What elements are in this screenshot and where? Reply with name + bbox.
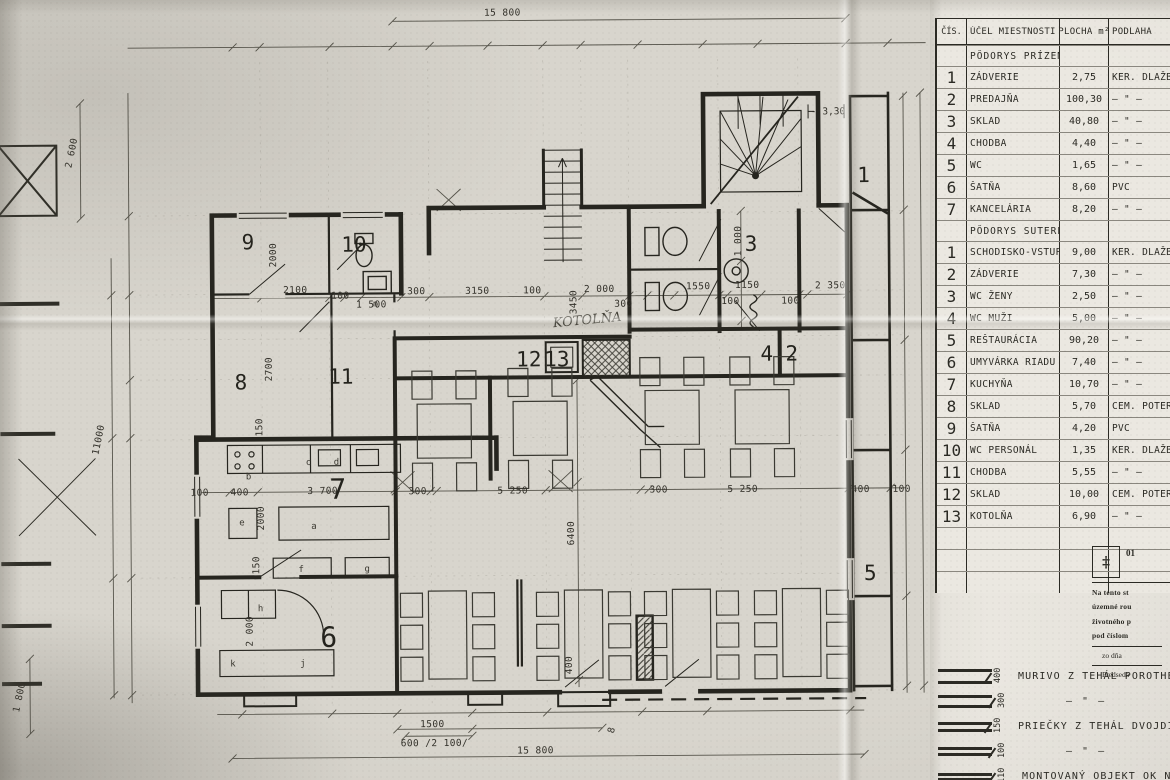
approval-stamp: ‡ 01 Na tento st územné rou životného p … bbox=[1092, 546, 1170, 681]
window-gap-top-1 bbox=[237, 211, 289, 220]
dim-label: 2 000 bbox=[584, 284, 615, 295]
stamp-text-line: územné rou bbox=[1092, 600, 1170, 614]
room-number: 12 bbox=[516, 347, 541, 371]
cell-floor: CEM. POTER bbox=[1109, 488, 1170, 501]
wall-thickness-label: 300 bbox=[997, 696, 1007, 708]
cell-area: 100,30 bbox=[1059, 89, 1109, 110]
dim-ticks-top bbox=[228, 14, 891, 52]
square-tables bbox=[417, 390, 789, 459]
equipment-letter: n bbox=[373, 299, 378, 309]
staff-sink bbox=[363, 271, 391, 293]
cell-name: UMYVÁRKA RIADU bbox=[967, 356, 1059, 369]
window-gap-right-2 bbox=[845, 558, 854, 600]
toilet-bowl-icon bbox=[663, 227, 687, 255]
equipment-letter: e bbox=[239, 518, 244, 528]
table-row: 6UMYVÁRKA RIADU7,40— " — bbox=[937, 351, 1170, 373]
cell-num: 5 bbox=[937, 330, 967, 351]
dim-label-vertical: 1 000 bbox=[733, 226, 744, 257]
room6-table bbox=[220, 650, 334, 677]
cell-num: 11 bbox=[937, 462, 967, 483]
cell-floor: — " — bbox=[1109, 466, 1170, 479]
stamp-emblem-icon: ‡ bbox=[1092, 546, 1120, 578]
cell-area: 8,20 bbox=[1059, 199, 1109, 220]
vestibule-hatched-floor bbox=[583, 340, 630, 377]
cell-area: 4,40 bbox=[1059, 133, 1109, 154]
dim-label: 400 bbox=[230, 487, 248, 498]
equipment-letter: f bbox=[299, 565, 304, 575]
wall-top-segments bbox=[429, 205, 847, 253]
cell-name: CHODBA bbox=[967, 466, 1059, 479]
dim-label-vertical: 1 800 bbox=[11, 681, 28, 713]
cell-floor bbox=[1109, 230, 1170, 232]
wall-hatch-icon bbox=[938, 747, 996, 756]
kitchen-counter bbox=[227, 444, 400, 473]
handwritten-note: KOTOLŇA bbox=[551, 308, 622, 331]
window-lines bbox=[193, 209, 853, 647]
burner-icon-1 bbox=[235, 452, 240, 457]
wall-hatch-icon bbox=[938, 722, 992, 732]
dim-label-vertical: 2 600 bbox=[63, 137, 80, 169]
cell-name: WC MUŽI bbox=[967, 312, 1059, 325]
serving-ramp bbox=[590, 376, 664, 448]
cell-floor: — " — bbox=[1109, 356, 1170, 369]
equipment-letter: b bbox=[246, 472, 251, 482]
dim-label-vertical: 150 bbox=[251, 556, 262, 574]
room-number: 10 bbox=[341, 233, 366, 257]
dim-label: 15 800 bbox=[484, 7, 521, 18]
cell-area: 5,00 bbox=[1059, 308, 1109, 329]
dim-label-vertical: 2700 bbox=[264, 357, 275, 382]
cell-floor: KER. DLAŽBA bbox=[1109, 246, 1170, 259]
cell-num: 10 bbox=[937, 440, 967, 461]
kitchen-island bbox=[279, 506, 389, 540]
wall-legend-row: 100 — " — bbox=[938, 739, 1170, 764]
cell-name: ZÁDVERIE bbox=[967, 71, 1059, 84]
stair-center-arrow bbox=[558, 158, 567, 262]
cell-floor bbox=[1109, 538, 1170, 540]
dim-label: 100 bbox=[331, 291, 349, 302]
room-schedule-table: ČÍS. ÚČEL MIESTNOSTI PLOCHA m² PODLAHA P… bbox=[935, 18, 1170, 593]
dim-label: 5 250 bbox=[727, 484, 758, 495]
blueprint-photo: 15 800 1500 600 /2 100/ 15 800 2100 100 … bbox=[0, 0, 1170, 780]
dim-label: 3150 bbox=[465, 286, 490, 297]
wall-hatch-icon bbox=[938, 669, 992, 684]
cell-num: 13 bbox=[937, 506, 967, 527]
dim-label: 1550 bbox=[686, 281, 711, 292]
wall-legend-label: PRIEČKY Z TEHÁL DVOJDIER. bbox=[1004, 721, 1170, 732]
cell-area: 10,00 bbox=[1059, 484, 1109, 505]
stair-center bbox=[543, 150, 582, 262]
stair-diagonal bbox=[710, 97, 799, 205]
equipment-letter: a bbox=[311, 522, 316, 532]
cell-floor: — " — bbox=[1109, 93, 1170, 106]
window-glazing-lines bbox=[193, 209, 853, 647]
dim-label: 2100 bbox=[283, 285, 308, 296]
cell-floor: — " — bbox=[1109, 312, 1170, 325]
stamp-text-line: pod číslom bbox=[1092, 629, 1170, 643]
table-row: 9ŠATŇA4,20PVC bbox=[937, 417, 1170, 439]
dim-line-right bbox=[903, 93, 924, 693]
cell-num: 1 bbox=[937, 242, 967, 263]
dim-label-vertical: 11000 bbox=[90, 424, 107, 456]
wall-kitchen-top bbox=[196, 438, 496, 471]
dim-label: 400 bbox=[851, 484, 869, 495]
restaurant-tables-bottom bbox=[400, 588, 849, 681]
wall-thickness-label: 150 bbox=[993, 721, 1003, 733]
dim-line-left bbox=[26, 93, 132, 734]
table-row: 1ZÁDVERIE2,75KER. DLAŽBA bbox=[937, 66, 1170, 88]
wall-legend-label: — " — bbox=[1008, 696, 1106, 707]
cell-floor bbox=[1109, 55, 1170, 57]
burner-icon-3 bbox=[235, 464, 240, 469]
header-floor: PODLAHA bbox=[1109, 26, 1170, 38]
cell-area: 7,30 bbox=[1059, 264, 1109, 285]
room-number: 8 bbox=[606, 726, 618, 735]
wall-legend-label: MONTOVANÝ OBJEKT OK N bbox=[1008, 771, 1170, 780]
window-gap-right-1 bbox=[844, 418, 853, 460]
wall-legend-row: 400 MURIVO Z TEHÁL POROTHERM bbox=[938, 664, 1170, 689]
cell-area: 5,55 bbox=[1059, 462, 1109, 483]
wall-legend-label: MURIVO Z TEHÁL POROTHERM bbox=[1004, 671, 1170, 682]
cell-floor: KER. DLAŽBA bbox=[1109, 444, 1170, 457]
door-gap-1 bbox=[249, 290, 285, 298]
table-row: 4WC MUŽI5,00— " — bbox=[937, 307, 1170, 329]
cell-name: SKLAD bbox=[967, 488, 1059, 501]
cell-name: WC bbox=[967, 159, 1059, 172]
header-num: ČÍS. bbox=[937, 19, 967, 44]
cell-name: CHODBA bbox=[967, 137, 1059, 150]
cell-num: 1 bbox=[937, 67, 967, 88]
cell-area: 40,80 bbox=[1059, 111, 1109, 132]
wall-hatch-icon bbox=[938, 695, 996, 708]
header-area: PLOCHA m² bbox=[1059, 19, 1109, 44]
table-row: 5REŠTAURÁCIA90,20— " — bbox=[937, 329, 1170, 351]
cell-area: 90,20 bbox=[1059, 330, 1109, 351]
wall-legend-row: 150 PRIEČKY Z TEHÁL DVOJDIER. bbox=[938, 714, 1170, 739]
table-row: 1SCHODISKO-VSTUP9,00KER. DLAŽBA bbox=[937, 241, 1170, 263]
equipment-letter: h bbox=[258, 604, 263, 614]
dim-label: 100 bbox=[892, 484, 910, 495]
room-number: 7 bbox=[329, 473, 346, 506]
wall-legend-row: 110 MONTOVANÝ OBJEKT OK N bbox=[938, 764, 1170, 780]
cell-floor: KER. DLAŽBA bbox=[1109, 71, 1170, 84]
cell-area: 1,65 bbox=[1059, 155, 1109, 176]
cell-name: PREDAJŇA bbox=[967, 93, 1059, 106]
cell-name: KANCELÁRIA bbox=[967, 203, 1059, 216]
cell-num: 8 bbox=[937, 396, 967, 417]
cell-num bbox=[937, 528, 967, 549]
toilet-bowl-icon-2 bbox=[663, 282, 687, 310]
cell-floor: — " — bbox=[1109, 203, 1170, 216]
dim-label: 1500 bbox=[420, 719, 445, 730]
room-number: 9 bbox=[242, 230, 255, 254]
room-number: 2 bbox=[785, 342, 798, 366]
wall-legend-label: — " — bbox=[1008, 746, 1106, 757]
cell-num: 5 bbox=[937, 155, 967, 176]
table-row: 13KOTOLŇA6,90— " — bbox=[937, 505, 1170, 527]
toilet-tank-2 bbox=[645, 282, 659, 310]
dim-label-vertical: 2000 bbox=[256, 506, 267, 531]
cell-num bbox=[937, 46, 967, 66]
cell-name: ŠATŇA bbox=[967, 422, 1059, 435]
cell-area: 2,75 bbox=[1059, 67, 1109, 88]
cell-area: 2,50 bbox=[1059, 286, 1109, 307]
washbasin-drain bbox=[732, 267, 740, 275]
dim-label: 100 bbox=[781, 296, 799, 307]
cell-area: 4,20 bbox=[1059, 418, 1109, 439]
equipment-letter: d bbox=[334, 458, 339, 468]
window-gap-top-2 bbox=[341, 210, 385, 219]
dim-label: 100 bbox=[721, 296, 739, 307]
stamp-emblem-row: ‡ 01 bbox=[1092, 546, 1170, 578]
cell-floor: — " — bbox=[1109, 268, 1170, 281]
dim-label-vertical: 150 bbox=[254, 418, 265, 436]
equipment-letter: j bbox=[300, 659, 305, 669]
cell-num: 3 bbox=[937, 111, 967, 132]
table-row: 2ZÁDVERIE7,30— " — bbox=[937, 263, 1170, 285]
cell-name: KUCHYŇA bbox=[967, 378, 1059, 391]
stamp-rule bbox=[1092, 582, 1170, 583]
dim-label: 300 bbox=[649, 484, 667, 495]
dim-label-vertical: 400 bbox=[564, 656, 575, 674]
axis-cross-marks bbox=[389, 188, 573, 493]
cell-area bbox=[1059, 221, 1109, 241]
window-gap-left-2 bbox=[193, 605, 202, 649]
cell-num: 7 bbox=[937, 374, 967, 395]
cell-floor: — " — bbox=[1109, 115, 1170, 128]
canopy-dashed-line bbox=[602, 698, 866, 700]
cell-name: REŠTAURÁCIA bbox=[967, 334, 1059, 347]
long-tables bbox=[428, 588, 821, 679]
table-row: 2PREDAJŇA100,30— " — bbox=[937, 88, 1170, 110]
dim-label: 1150 bbox=[735, 280, 760, 291]
walls bbox=[194, 93, 892, 695]
room6-door-arc bbox=[277, 590, 323, 636]
wall-thickness-label: 110 bbox=[997, 771, 1007, 780]
room-number: 5 bbox=[864, 561, 877, 585]
table-row: 8SKLAD5,70CEM. POTER bbox=[937, 395, 1170, 417]
dim-label-vertical: 6400 bbox=[566, 521, 577, 546]
staff-sink-basin bbox=[368, 276, 386, 289]
dim-line-top bbox=[127, 18, 925, 49]
counter-sink-2 bbox=[356, 449, 378, 465]
section-title-row: PÔDORYS SUTERÉNU bbox=[937, 220, 1170, 241]
cell-floor: — " — bbox=[1109, 137, 1170, 150]
table-row: 6ŠATŇA8,60PVC bbox=[937, 176, 1170, 198]
equipment-letter: k bbox=[230, 659, 236, 669]
cell-name: SKLAD bbox=[967, 400, 1059, 413]
room-number: 13 bbox=[544, 347, 569, 371]
table-header-row: ČÍS. ÚČEL MIESTNOSTI PLOCHA m² PODLAHA bbox=[937, 19, 1170, 45]
cell-name: WC ŽENY bbox=[967, 290, 1059, 303]
dim-label-vertical: 2 000 bbox=[245, 616, 256, 647]
wall-type-legend: 400 MURIVO Z TEHÁL POROTHERM 300 — " — 1… bbox=[938, 664, 1170, 780]
cell-area: 8,60 bbox=[1059, 177, 1109, 198]
toilet-tank-1 bbox=[645, 227, 659, 255]
dim-label: 1 500 bbox=[356, 299, 387, 310]
stamp-rule bbox=[1092, 646, 1162, 647]
cell-name: SCHODISKO-VSTUP bbox=[967, 246, 1059, 259]
cell-floor: PVC bbox=[1109, 181, 1170, 194]
cell-num: 6 bbox=[937, 177, 967, 198]
table-row: 12SKLAD10,00CEM. POTER bbox=[937, 483, 1170, 505]
wall-thickness-label: 400 bbox=[993, 671, 1003, 683]
section-title: PÔDORYS SUTERÉNU bbox=[967, 225, 1059, 238]
stamp-text-line: Na tento st bbox=[1092, 586, 1170, 600]
wc-fixtures bbox=[355, 227, 757, 330]
dim-label-vertical: 3450 bbox=[568, 290, 579, 315]
level-label: - 3,30 bbox=[811, 106, 846, 117]
cell-floor: — " — bbox=[1109, 334, 1170, 347]
cell-area: 6,90 bbox=[1059, 506, 1109, 527]
burner-icon-4 bbox=[249, 464, 254, 469]
room-number: 6 bbox=[320, 621, 337, 654]
cell-num: 6 bbox=[937, 352, 967, 373]
cell-name: ŠATŇA bbox=[967, 181, 1059, 194]
cell-area bbox=[1059, 46, 1109, 66]
chairs-bottom bbox=[400, 590, 849, 681]
cell-area: 5,70 bbox=[1059, 396, 1109, 417]
cell-name bbox=[967, 582, 1059, 584]
room-number: 8 bbox=[235, 370, 248, 394]
dim-label: 300 bbox=[408, 486, 426, 497]
equipment-letter: c bbox=[306, 458, 311, 468]
burner-icon-2 bbox=[249, 452, 254, 457]
cell-num: 7 bbox=[937, 199, 967, 220]
table-row: 7KANCELÁRIA8,20— " — bbox=[937, 198, 1170, 220]
stair-newel bbox=[752, 173, 758, 179]
equipment-letter-labels: b c d e a f g h k j n bbox=[228, 299, 381, 669]
cell-num: 12 bbox=[937, 484, 967, 505]
dim-label: 100 bbox=[190, 488, 208, 499]
cell-num: 4 bbox=[937, 308, 967, 329]
table-row: 5WC1,65— " — bbox=[937, 154, 1170, 176]
dim-label-vertical: 2000 bbox=[268, 243, 279, 268]
wall-hatch-icon bbox=[938, 773, 996, 780]
cell-floor: PVC bbox=[1109, 422, 1170, 435]
equipment-letter: g bbox=[365, 565, 370, 575]
dim-label: 15 800 bbox=[517, 745, 554, 756]
cell-num bbox=[937, 550, 967, 571]
cell-name bbox=[967, 538, 1059, 540]
cell-area: 7,40 bbox=[1059, 352, 1109, 373]
dim-label: 2 350 bbox=[815, 280, 846, 291]
header-name: ÚČEL MIESTNOSTI bbox=[967, 26, 1059, 38]
cell-name: WC PERSONÁL bbox=[967, 444, 1059, 457]
cell-num: 2 bbox=[937, 89, 967, 110]
door-gap-4 bbox=[662, 686, 698, 696]
room-number: 1 bbox=[857, 163, 870, 187]
dim-label: 600 /2 100/ bbox=[401, 738, 468, 749]
cell-num bbox=[937, 221, 967, 241]
dim-label: 100 bbox=[523, 285, 541, 296]
room-number: 3 bbox=[745, 232, 758, 256]
stair-upper-block bbox=[710, 93, 802, 204]
table-row: 7KUCHYŇA10,70— " — bbox=[937, 373, 1170, 395]
cell-num: 9 bbox=[937, 418, 967, 439]
table-row: 3WC ŽENY2,50— " — bbox=[937, 285, 1170, 307]
cell-floor: CEM. POTER bbox=[1109, 400, 1170, 413]
cell-num: 3 bbox=[937, 286, 967, 307]
cell-floor: — " — bbox=[1109, 510, 1170, 523]
stamp-date-label: zo dňa bbox=[1092, 650, 1170, 662]
cell-floor: — " — bbox=[1109, 378, 1170, 391]
adjacent-building-fragments bbox=[0, 145, 97, 684]
cell-num: 4 bbox=[937, 133, 967, 154]
cell-area: 9,00 bbox=[1059, 242, 1109, 263]
cell-name bbox=[967, 560, 1059, 562]
room-number: 4 bbox=[760, 342, 773, 366]
left-fragment-walls bbox=[0, 304, 62, 684]
cell-area: 1,35 bbox=[1059, 440, 1109, 461]
wall-thickness-label: 100 bbox=[997, 746, 1007, 758]
stamp-text-line: životného p bbox=[1092, 615, 1170, 629]
cell-floor: — " — bbox=[1109, 290, 1170, 303]
table-row: 3SKLAD40,80— " — bbox=[937, 110, 1170, 132]
left-fragment-roof-diagonals bbox=[18, 458, 96, 536]
dim-label: 300 bbox=[407, 286, 425, 297]
dim-label: 5 250 bbox=[497, 485, 528, 496]
room-number: 11 bbox=[328, 365, 353, 389]
wall-legend-row: 300 — " — bbox=[938, 689, 1170, 714]
table-row: 11CHODBA5,55— " — bbox=[937, 461, 1170, 483]
dim-label: 300 bbox=[614, 299, 632, 310]
cell-floor: — " — bbox=[1109, 159, 1170, 172]
table-row: 10WC PERSONÁL1,35KER. DLAŽBA bbox=[937, 439, 1170, 461]
cell-name: ZÁDVERIE bbox=[967, 268, 1059, 281]
section-title: PÔDORYS PRÍZEMIA bbox=[967, 50, 1059, 63]
annotations: KOTOLŇA - 3,30 bbox=[550, 106, 847, 331]
cell-num: 2 bbox=[937, 264, 967, 285]
cell-name: KOTOLŇA bbox=[967, 510, 1059, 523]
section-title-row: PÔDORYS PRÍZEMIA bbox=[937, 45, 1170, 66]
left-fragment-braced-box bbox=[0, 146, 57, 216]
radiator-coil-icon bbox=[750, 295, 757, 327]
wall-mid-partition bbox=[490, 378, 491, 479]
cell-num bbox=[937, 572, 967, 593]
table-row: 4CHODBA4,40— " — bbox=[937, 132, 1170, 154]
cell-name: SKLAD bbox=[967, 115, 1059, 128]
cell-area: 10,70 bbox=[1059, 374, 1109, 395]
stamp-code: 01 bbox=[1126, 548, 1135, 558]
door-gap-2 bbox=[300, 328, 330, 336]
